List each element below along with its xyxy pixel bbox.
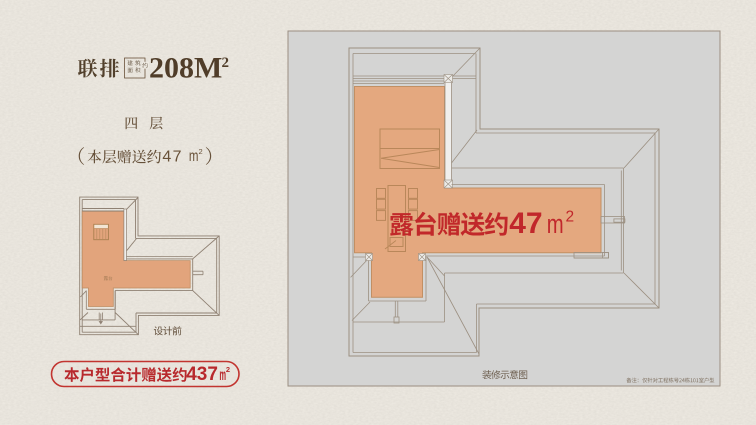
svg-text:2: 2 <box>226 365 230 374</box>
svg-text:m: m <box>547 210 564 239</box>
svg-text:2: 2 <box>566 208 575 225</box>
svg-text:437: 437 <box>186 364 218 385</box>
svg-text:47: 47 <box>162 149 182 166</box>
svg-text:208M: 208M <box>149 52 222 85</box>
svg-text:47: 47 <box>509 207 542 240</box>
svg-text:m: m <box>189 146 199 164</box>
svg-text:2: 2 <box>222 55 230 71</box>
svg-text:2: 2 <box>199 147 203 156</box>
